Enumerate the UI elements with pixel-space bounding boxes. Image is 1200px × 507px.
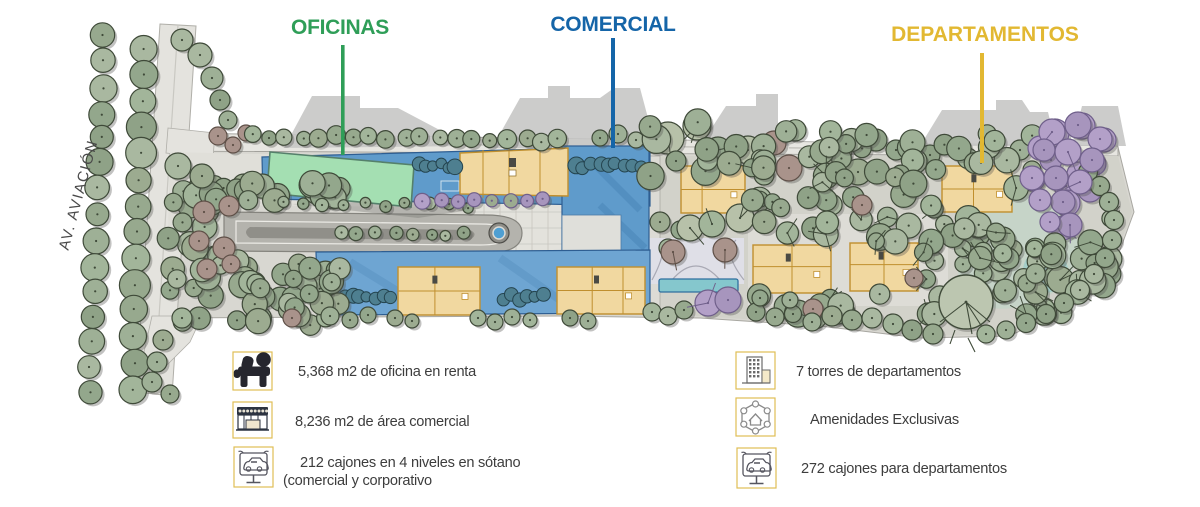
svg-text:8,236 m2 de área comercial: 8,236 m2 de área comercial: [295, 414, 469, 430]
svg-text:272 cajones para departamentos: 272 cajones para departamentos: [801, 461, 1007, 477]
svg-text:7 torres de departamentos: 7 torres de departamentos: [796, 364, 961, 380]
svg-text:5,368 m2 de oficina en renta: 5,368 m2 de oficina en renta: [298, 364, 477, 380]
svg-text:COMERCIAL: COMERCIAL: [550, 13, 676, 36]
svg-text:Amenidades Exclusivas: Amenidades Exclusivas: [810, 412, 959, 428]
svg-text:DEPARTAMENTOS: DEPARTAMENTOS: [891, 23, 1079, 46]
svg-text:(comercial y corporativo: (comercial y corporativo: [283, 473, 432, 489]
svg-text:212 cajones en 4 niveles en só: 212 cajones en 4 niveles en sótano: [300, 455, 520, 471]
svg-text:OFICINAS: OFICINAS: [291, 16, 389, 39]
